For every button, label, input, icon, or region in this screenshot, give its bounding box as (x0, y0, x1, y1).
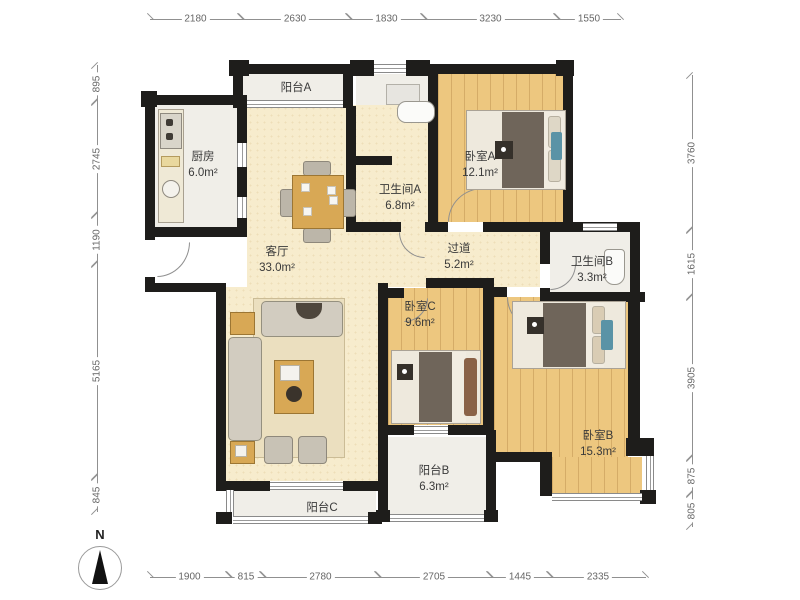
wall (216, 481, 270, 491)
bed-blanket-icon (543, 303, 588, 367)
wall (343, 64, 353, 108)
dimension-value: 2745 (92, 144, 103, 172)
dimension-value: 875 (687, 465, 698, 488)
plate-icon (301, 183, 310, 192)
room-name: 卧室B (580, 428, 616, 444)
dimension-value: 1615 (687, 249, 698, 277)
wall (494, 287, 507, 297)
cutting-board-icon (161, 156, 180, 167)
dimension-value: 815 (235, 572, 258, 583)
burner-icon (166, 133, 173, 140)
wall (378, 288, 404, 298)
dimension-right-3: 3905 (685, 297, 699, 458)
wall (426, 278, 487, 288)
wall-column (640, 490, 656, 504)
room-name: 过道 (444, 241, 473, 257)
window (243, 100, 343, 108)
compass: N (72, 528, 128, 596)
wall (486, 430, 496, 522)
wall (540, 452, 552, 496)
bay-window (552, 493, 642, 501)
wall (237, 95, 247, 143)
dimension-value: 3905 (687, 363, 698, 391)
wall (145, 227, 247, 237)
dimension-left-3: 1190 (90, 215, 104, 264)
room-name: 卧室A (462, 149, 498, 165)
room-label-kitchen: 厨房 6.0m² (188, 149, 217, 181)
north-label: N (72, 528, 128, 541)
decor-icon (501, 147, 506, 152)
plate-icon (303, 207, 312, 216)
dimension-top-5: 1550 (557, 12, 621, 26)
plate-icon (329, 196, 338, 205)
room-area: 33.0m² (259, 260, 295, 276)
bed-runner-icon (601, 320, 613, 350)
room-name: 卧室C (404, 299, 435, 315)
decor-icon (532, 322, 537, 327)
dimension-bottom-6: 2335 (550, 570, 646, 584)
room-label-bed-b: 卧室B 15.3m² (580, 428, 616, 460)
dimension-right-5: 805 (685, 494, 699, 527)
dimension-left-2: 2745 (90, 102, 104, 215)
wall (630, 222, 640, 302)
wall (237, 167, 247, 197)
room-area: 6.0m² (188, 165, 217, 181)
dimension-value: 1900 (175, 572, 203, 583)
room-label-balcony-b: 阳台B 6.3m² (419, 463, 450, 495)
dimension-value: 2335 (584, 572, 612, 583)
dimension-left-1: 895 (90, 65, 104, 102)
dimension-value: 1830 (372, 14, 400, 25)
dimension-value: 845 (92, 483, 103, 506)
dimension-value: 5165 (92, 356, 103, 384)
bed-blanket-icon (419, 352, 452, 422)
balcony-c-floor (234, 490, 376, 516)
north-arrow-icon (92, 550, 108, 584)
bed-runner-icon (551, 132, 562, 160)
burner-icon (166, 119, 173, 126)
dimension-top-3: 1830 (349, 12, 424, 26)
wall-stub (352, 156, 392, 165)
room-area: 15.3m² (580, 444, 616, 460)
dimension-value: 2780 (306, 572, 334, 583)
entry-door-arc (157, 242, 190, 277)
decor-icon (286, 386, 302, 402)
plate-icon (327, 186, 336, 195)
room-name: 阳台A (281, 80, 312, 96)
dining-chair-icon (303, 228, 331, 243)
sofa-icon (228, 337, 262, 441)
room-area: 9.6m² (404, 315, 435, 331)
room-name: 卫生间B (571, 254, 613, 270)
dimension-value: 895 (92, 72, 103, 95)
room-label-balcony-a: 阳台A (281, 80, 312, 96)
dimension-bottom-3: 2780 (263, 570, 378, 584)
floor-plan-page: 阳台A 厨房 6.0m² 卫生间A 6.8m² 卧室A 12.1m² 客厅 33… (0, 0, 800, 600)
wall-column (216, 512, 232, 524)
window (414, 426, 448, 434)
dimension-value: 1190 (92, 226, 103, 254)
dimension-right-1: 3760 (685, 75, 699, 230)
dimension-right-2: 1615 (685, 230, 699, 297)
dimension-bottom-5: 1445 (490, 570, 550, 584)
room-area: 12.1m² (462, 165, 498, 181)
dimension-value: 2630 (281, 14, 309, 25)
dimension-value: 1445 (506, 572, 534, 583)
room-label-balcony-c: 阳台C (306, 500, 337, 516)
wall (425, 222, 448, 232)
dimension-value: 1550 (575, 14, 603, 25)
decor-icon (402, 369, 407, 374)
wall (346, 222, 401, 232)
sink-icon (162, 180, 180, 198)
dimension-left-4: 5165 (90, 264, 104, 477)
room-label-hall: 过道 5.2m² (444, 241, 473, 273)
wall-column (406, 60, 430, 76)
room-name: 客厅 (259, 244, 295, 260)
wall (233, 64, 353, 74)
wall (145, 95, 243, 105)
dimension-value: 2180 (181, 14, 209, 25)
dining-chair-icon (303, 161, 331, 176)
dimension-top-1: 2180 (150, 12, 241, 26)
room-label-bed-a: 卧室A 12.1m² (462, 149, 498, 181)
ottoman-icon (264, 436, 293, 464)
bed-b-bay-floor (552, 457, 642, 493)
room-label-bed-c: 卧室C 9.6m² (404, 299, 435, 331)
room-area: 5.2m² (444, 257, 473, 273)
wall (378, 425, 414, 435)
window (372, 64, 408, 73)
room-area: 3.3m² (571, 270, 613, 286)
window (270, 482, 343, 490)
room-name: 阳台B (419, 463, 450, 479)
wall (628, 292, 640, 444)
wall (540, 222, 550, 264)
wall (428, 64, 573, 74)
room-name: 卫生间A (379, 182, 421, 198)
wall-column (350, 60, 374, 76)
decor-icon (280, 365, 300, 381)
room-label-bath-b: 卫生间B 3.3m² (571, 254, 613, 286)
window (583, 223, 617, 231)
ottoman-icon (298, 436, 327, 464)
room-label-living: 客厅 33.0m² (259, 244, 295, 276)
bathtub-icon (397, 101, 435, 123)
wall (378, 283, 388, 522)
dimension-bottom-2: 815 (229, 570, 263, 584)
room-label-bath-a: 卫生间A 6.8m² (379, 182, 421, 214)
wall (428, 64, 438, 232)
room-name: 阳台C (306, 500, 337, 516)
dimension-top-2: 2630 (241, 12, 349, 26)
dimension-bottom-1: 1900 (150, 570, 229, 584)
window (237, 197, 247, 218)
decor-icon (235, 445, 247, 457)
window (388, 514, 486, 522)
wall-column (484, 510, 498, 522)
bay-window (646, 456, 654, 492)
side-table-icon (230, 312, 255, 335)
dimension-left-5: 845 (90, 477, 104, 512)
wall-column (626, 438, 654, 456)
wall (216, 283, 226, 488)
dimension-top-4: 3230 (424, 12, 557, 26)
pillow-icon (464, 358, 477, 416)
dimension-value: 3230 (476, 14, 504, 25)
wall (145, 283, 225, 292)
room-area: 6.8m² (379, 198, 421, 214)
window (237, 143, 247, 167)
window (233, 516, 376, 524)
dimension-value: 2705 (420, 572, 448, 583)
wall-column (368, 512, 382, 524)
room-name: 厨房 (188, 149, 217, 165)
dimension-value: 805 (687, 499, 698, 522)
dimension-value: 3760 (687, 138, 698, 166)
room-area: 6.3m² (419, 479, 450, 495)
wall (145, 95, 155, 240)
dimension-bottom-4: 2705 (378, 570, 490, 584)
wall (483, 278, 494, 435)
dimension-right-4: 875 (685, 458, 699, 494)
